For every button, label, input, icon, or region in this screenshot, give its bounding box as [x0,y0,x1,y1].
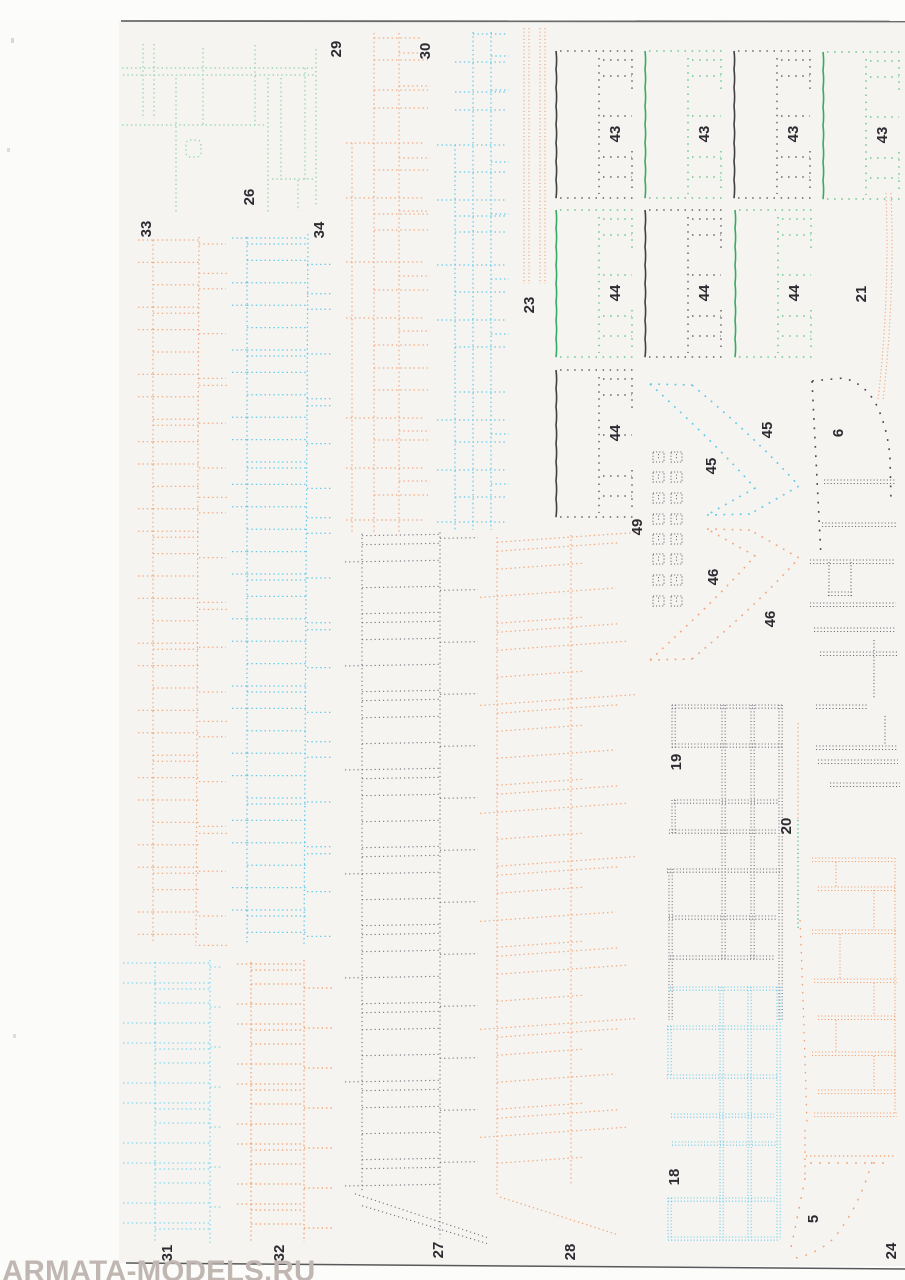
svg-text:43: 43 [607,126,624,143]
svg-text:19: 19 [668,754,685,771]
svg-text:43: 43 [696,126,713,143]
svg-text:30: 30 [417,43,434,60]
svg-text:6: 6 [830,429,847,437]
svg-text:43: 43 [785,126,802,143]
svg-text:18: 18 [666,1169,683,1186]
svg-text:45: 45 [703,458,720,475]
svg-text:29: 29 [328,41,345,58]
svg-text:46: 46 [705,569,722,586]
svg-text:24: 24 [883,1242,900,1259]
svg-text:44: 44 [607,284,624,301]
svg-text:34: 34 [311,221,328,238]
svg-text:33: 33 [138,221,155,238]
svg-text:5: 5 [805,1215,822,1223]
svg-text:ARMATA-MODELS.RU: ARMATA-MODELS.RU [2,1255,315,1280]
svg-text:23: 23 [521,297,538,314]
svg-text:44: 44 [786,284,803,301]
svg-text:46: 46 [762,611,779,628]
svg-text:26: 26 [241,189,258,206]
svg-text:49: 49 [629,519,646,536]
svg-text:28: 28 [562,1244,579,1261]
svg-text:21: 21 [853,286,870,303]
svg-text:44: 44 [696,284,713,301]
svg-text:27: 27 [430,1242,447,1259]
svg-text:44: 44 [607,424,624,441]
svg-text:43: 43 [874,127,891,144]
svg-text:20: 20 [778,818,795,835]
svg-text:45: 45 [759,422,776,439]
